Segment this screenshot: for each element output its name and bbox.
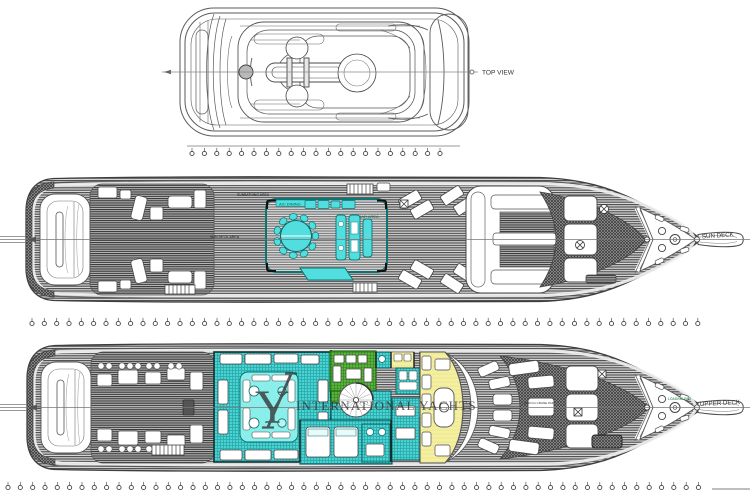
svg-text:INTERNATIONAL YACHTS: INTERNATIONAL YACHTS <box>296 398 477 413</box>
svg-text:SUNBATHING AREA: SUNBATHING AREA <box>237 193 270 197</box>
svg-text:SUN DECK AREA: SUN DECK AREA <box>210 235 240 239</box>
svg-text:1500 KG CRANE PAD: 1500 KG CRANE PAD <box>524 401 555 405</box>
svg-text:LOADING PAD: LOADING PAD <box>668 397 691 401</box>
svg-text:A/C DINING: A/C DINING <box>279 201 301 206</box>
svg-text:TOP VIEW: TOP VIEW <box>482 70 515 77</box>
